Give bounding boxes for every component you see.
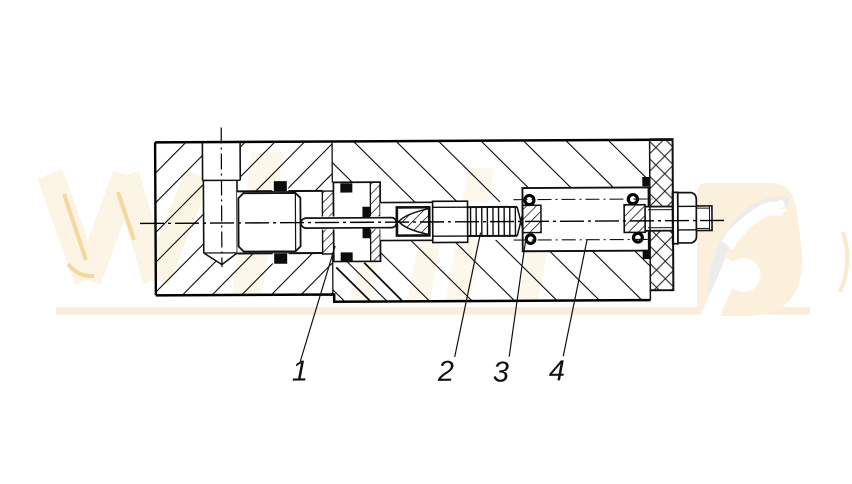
svg-text:1: 1 — [292, 356, 308, 388]
svg-text:2: 2 — [437, 356, 454, 388]
svg-text:3: 3 — [493, 357, 509, 389]
svg-text:4: 4 — [549, 355, 565, 387]
